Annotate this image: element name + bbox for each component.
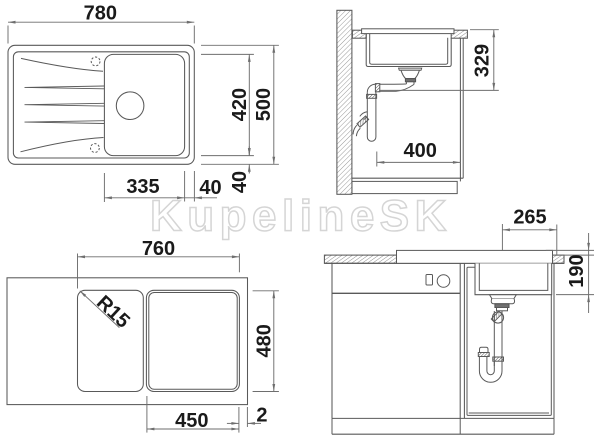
svg-text:265: 265 bbox=[513, 206, 546, 228]
svg-text:190: 190 bbox=[566, 254, 588, 287]
svg-text:KupelineSK: KupelineSK bbox=[150, 192, 452, 241]
svg-text:480: 480 bbox=[253, 324, 275, 357]
svg-text:500: 500 bbox=[253, 88, 275, 121]
svg-text:760: 760 bbox=[142, 238, 175, 260]
svg-text:450: 450 bbox=[175, 410, 208, 432]
svg-text:780: 780 bbox=[84, 3, 117, 25]
svg-text:400: 400 bbox=[404, 140, 437, 162]
svg-text:420: 420 bbox=[229, 88, 251, 121]
svg-text:329: 329 bbox=[471, 44, 493, 77]
svg-text:2: 2 bbox=[256, 405, 267, 427]
svg-text:40: 40 bbox=[229, 171, 251, 193]
